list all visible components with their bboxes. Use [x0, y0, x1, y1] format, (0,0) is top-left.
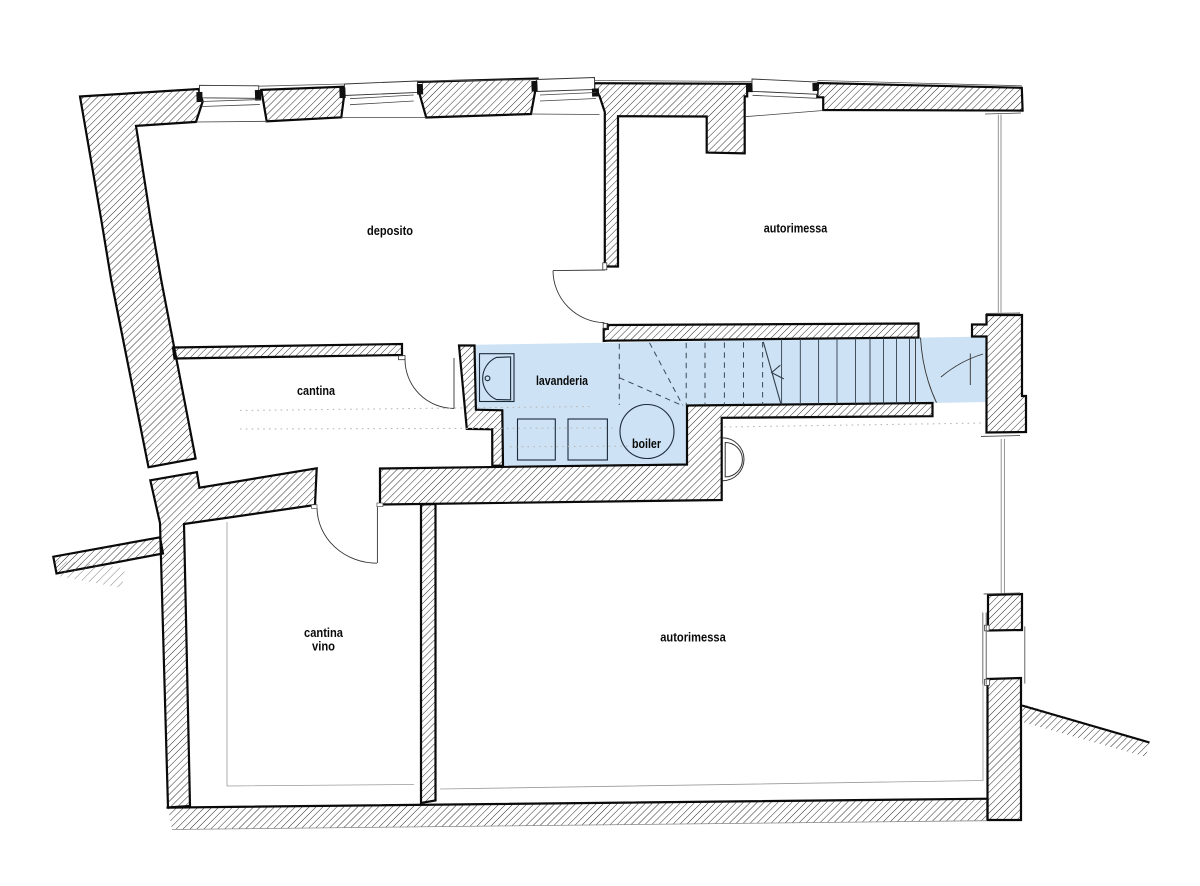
svg-text:boiler: boiler	[632, 436, 661, 451]
svg-text:cantina: cantina	[297, 383, 336, 398]
svg-text:autorimessa: autorimessa	[660, 630, 726, 645]
svg-text:lavanderia: lavanderia	[536, 373, 589, 388]
svg-text:deposito: deposito	[367, 223, 413, 238]
svg-text:autorimessa: autorimessa	[764, 221, 828, 236]
svg-text:vino: vino	[312, 639, 335, 654]
